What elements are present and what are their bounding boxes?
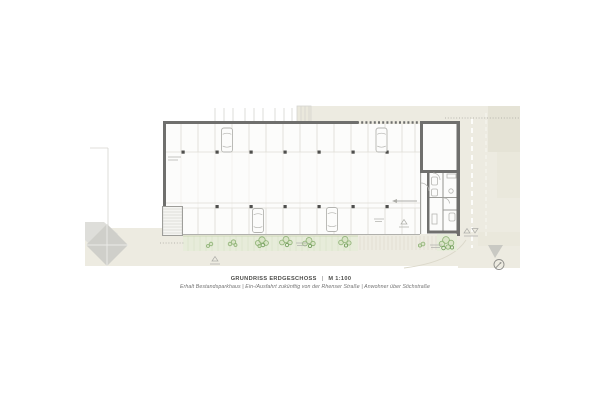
plan-subtitle: Erhalt Bestandsparkhaus | Ein-/Ausfahrt … (180, 284, 430, 290)
plan-title-text: GRUNDRISS ERDGESCHOSS (231, 276, 317, 282)
car-icon (253, 209, 264, 233)
car-icon (222, 128, 233, 152)
plan-sheet: GRUNDRISS ERDGESCHOSS | M 1:100 Erhalt B… (0, 0, 600, 400)
garage-building (162, 121, 460, 236)
plan-scale: M 1:100 (328, 276, 351, 282)
plan-title: GRUNDRISS ERDGESCHOSS | M 1:100 (231, 276, 352, 282)
car-icon (376, 128, 387, 152)
car-icon (327, 208, 338, 232)
stair-west (163, 207, 183, 236)
title-separator: | (322, 276, 324, 282)
site-plan-drawing (0, 0, 600, 400)
